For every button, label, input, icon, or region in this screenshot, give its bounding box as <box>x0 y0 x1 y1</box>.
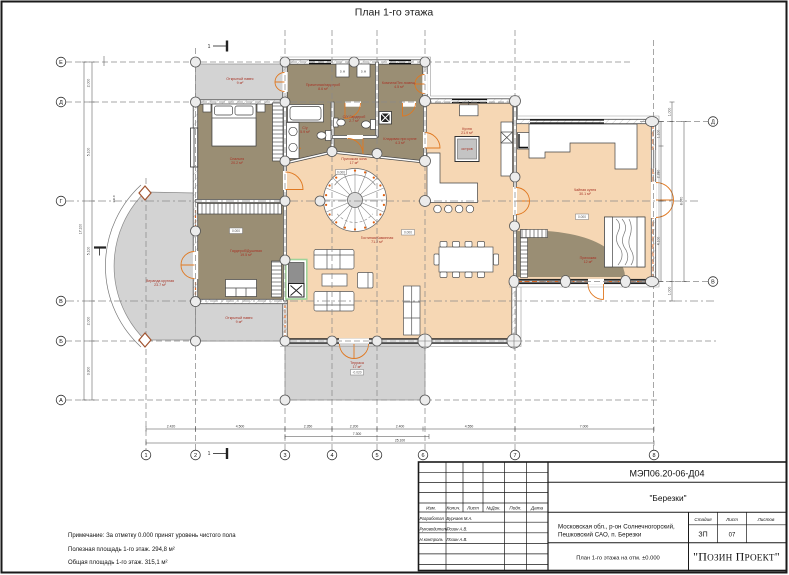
svg-text:Н.контроль: Н.контроль <box>420 537 443 542</box>
svg-text:Изм.: Изм. <box>426 506 436 511</box>
svg-text:5.100: 5.100 <box>87 247 91 256</box>
svg-text:Полезная площадь 1-го этаж. 29: Полезная площадь 1-го этаж. 294,8 м² <box>68 547 175 553</box>
svg-text:6: 6 <box>421 453 424 459</box>
svg-text:1: 1 <box>208 44 211 50</box>
svg-text:План 1-го этажа на отм. ±0.000: План 1-го этажа на отм. ±0.000 <box>576 556 660 562</box>
svg-text:Е: Е <box>59 60 63 66</box>
svg-text:0.000: 0.000 <box>404 231 412 235</box>
svg-text:Б: Б <box>59 339 63 345</box>
svg-text:Позин А.В.: Позин А.В. <box>447 537 468 542</box>
svg-text:Г: Г <box>60 199 63 205</box>
svg-text:17.100: 17.100 <box>79 224 83 234</box>
svg-text:D.M: D.M <box>340 70 346 74</box>
svg-text:Д: Д <box>59 100 63 106</box>
svg-text:Дата: Дата <box>530 506 544 511</box>
svg-text:5.100: 5.100 <box>87 148 91 157</box>
svg-text:1: 1 <box>144 453 147 459</box>
svg-text:2.200: 2.200 <box>350 425 359 429</box>
svg-text:0.000: 0.000 <box>578 215 586 219</box>
svg-text:2.280: 2.280 <box>657 170 661 179</box>
svg-text:8.070: 8.070 <box>680 197 684 206</box>
svg-text:№Док.: №Док. <box>486 506 500 511</box>
svg-text:0.000: 0.000 <box>337 171 345 175</box>
svg-text:Руководитель: Руководитель <box>420 526 449 531</box>
svg-text:Кухня21.9 м²: Кухня21.9 м² <box>461 127 473 135</box>
svg-text:Д: Д <box>711 120 715 126</box>
svg-text:3.300: 3.300 <box>87 367 91 376</box>
svg-text:1.000: 1.000 <box>668 108 672 117</box>
svg-text:МЭП06.20-06-Д04: МЭП06.20-06-Д04 <box>629 469 704 479</box>
svg-text:Колич.: Колич. <box>447 506 461 511</box>
svg-text:3: 3 <box>283 453 286 459</box>
svg-text:2.420: 2.420 <box>167 425 176 429</box>
svg-text:Стадия: Стадия <box>694 517 712 522</box>
svg-text:ЗП: ЗП <box>698 532 707 539</box>
svg-text:4.500: 4.500 <box>236 425 245 429</box>
svg-text:0.000: 0.000 <box>232 229 240 233</box>
svg-text:2.000: 2.000 <box>87 79 91 88</box>
svg-text:D.M: D.M <box>361 70 367 74</box>
svg-text:7.300: 7.300 <box>353 432 362 436</box>
svg-text:1.000: 1.000 <box>668 287 672 296</box>
svg-text:Листов: Листов <box>757 517 775 522</box>
svg-text:Общая площадь 1-го этаж. 315,1: Общая площадь 1-го этаж. 315,1 м² <box>68 560 168 566</box>
svg-text:В: В <box>711 280 715 286</box>
svg-text:2.350: 2.350 <box>304 425 313 429</box>
svg-text:Пешковский САО, п. Березки: Пешковский САО, п. Березки <box>558 532 642 539</box>
svg-text:А: А <box>59 398 63 404</box>
svg-text:остров: остров <box>461 147 472 151</box>
svg-text:1.100: 1.100 <box>657 130 661 139</box>
svg-text:07: 07 <box>729 533 736 539</box>
svg-text:5: 5 <box>375 453 378 459</box>
svg-text:4.550: 4.550 <box>465 425 474 429</box>
svg-text:Московская обл., р-он Солнечно: Московская обл., р-он Солнечногорский, <box>558 524 675 531</box>
svg-text:2.000: 2.000 <box>87 317 91 326</box>
svg-text:Разработал: Разработал <box>420 516 445 521</box>
svg-text:7.000: 7.000 <box>580 425 589 429</box>
svg-text:Лист: Лист <box>466 506 479 511</box>
svg-text:Бурнаев М.А.: Бурнаев М.А. <box>447 516 473 521</box>
svg-text:25.100: 25.100 <box>395 439 405 443</box>
svg-text:1: 1 <box>208 451 211 457</box>
svg-text:Примечание: За отметку 0.000 п: Примечание: За отметку 0.000 принят уров… <box>68 533 236 539</box>
svg-text:8: 8 <box>652 453 655 459</box>
svg-text:4.100: 4.100 <box>657 237 661 246</box>
svg-text:340.8: 340.8 <box>112 195 116 202</box>
svg-text:2.400: 2.400 <box>396 425 405 429</box>
svg-text:4: 4 <box>330 453 333 459</box>
svg-text:"ПОЗИН ПРОЕКТ": "ПОЗИН ПРОЕКТ" <box>693 550 780 564</box>
svg-text:Позин А.В.: Позин А.В. <box>447 526 468 531</box>
svg-text:"Березки": "Березки" <box>649 493 686 503</box>
svg-text:Лист: Лист <box>725 517 738 522</box>
svg-text:-0.020: -0.020 <box>352 371 361 375</box>
svg-text:В: В <box>59 299 63 305</box>
svg-text:Подп.: Подп. <box>509 506 521 511</box>
svg-text:7: 7 <box>513 453 516 459</box>
svg-text:2: 2 <box>194 453 197 459</box>
svg-text:Спальня20.2 м²: Спальня20.2 м² <box>230 157 244 165</box>
svg-text:План 1-го этажа: План 1-го этажа <box>355 7 434 19</box>
